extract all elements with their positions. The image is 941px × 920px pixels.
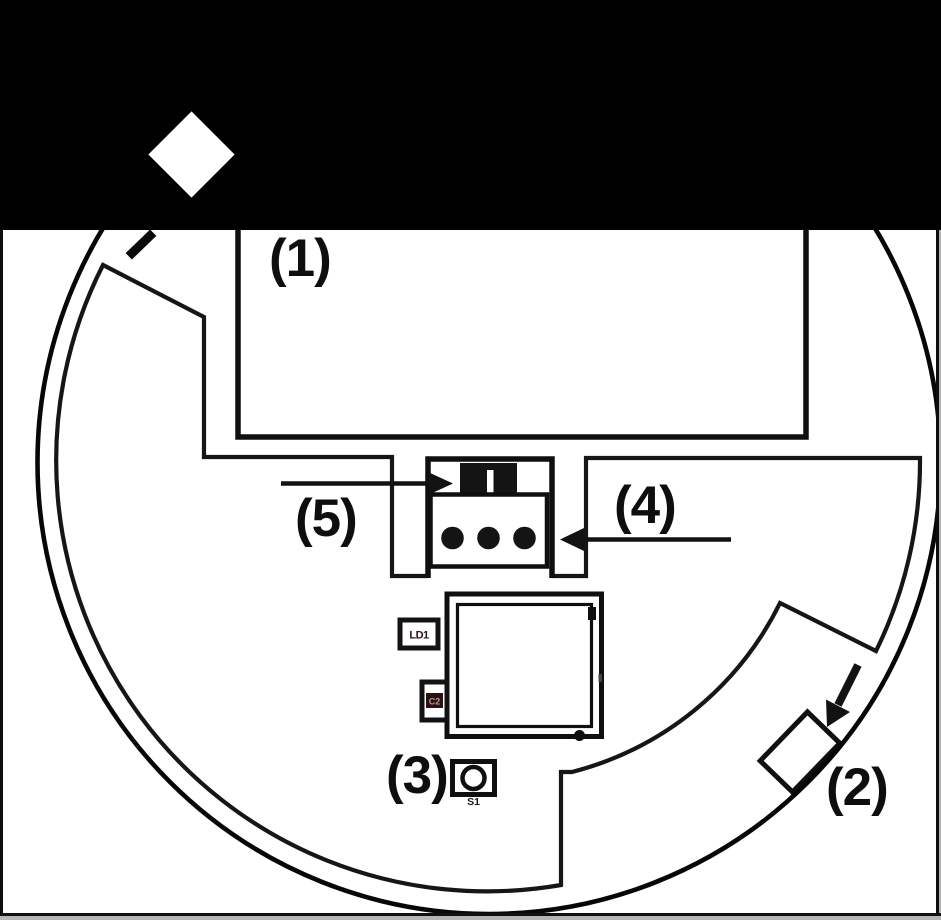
frame-right-edge xyxy=(936,230,939,918)
frame-bottom-edge xyxy=(0,913,941,916)
callout-4: (4) xyxy=(614,479,676,532)
frame-bottom-grey-edge xyxy=(0,916,941,920)
device-diagram: LD1 C2 S1 (1) (5) (4) (3) (2) xyxy=(0,0,941,920)
callout-5: (5) xyxy=(295,492,357,545)
ld1-label: LD1 xyxy=(409,630,429,642)
square-side-tick xyxy=(599,674,603,682)
arrow-2-line xyxy=(838,665,858,705)
callout-3: (3) xyxy=(386,749,448,802)
square-corner-dot xyxy=(574,730,585,741)
s1-button-ring xyxy=(463,767,485,789)
socket-pin-2 xyxy=(477,527,500,550)
arrow-4-head xyxy=(560,528,584,551)
header-band xyxy=(0,0,941,230)
callout-1: (1) xyxy=(269,232,331,285)
socket-pin-3 xyxy=(513,527,536,550)
c2-label: C2 xyxy=(429,697,441,707)
frame-left-edge xyxy=(0,230,3,920)
square-notch xyxy=(588,607,596,620)
socket-pin-1 xyxy=(441,527,464,550)
callout-2: (2) xyxy=(826,761,888,814)
s1-label: S1 xyxy=(467,796,480,808)
component-square-inner xyxy=(458,605,592,727)
